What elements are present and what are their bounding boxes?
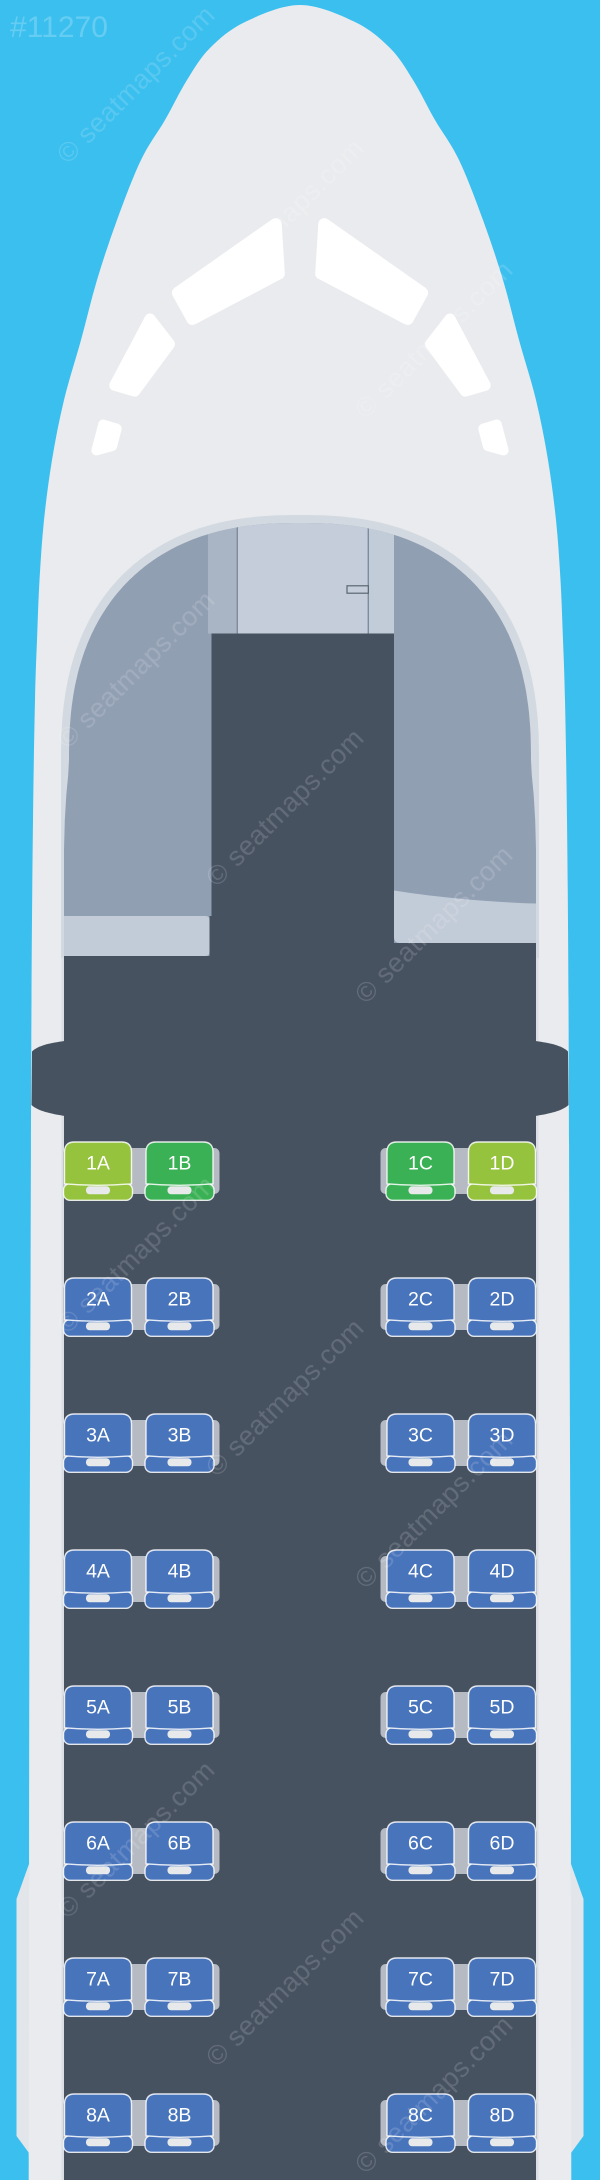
svg-text:8D: 8D (490, 2105, 515, 2127)
svg-text:3A: 3A (86, 1425, 110, 1447)
svg-text:7C: 7C (408, 1969, 433, 1991)
svg-text:7B: 7B (168, 1969, 192, 1991)
svg-text:3C: 3C (408, 1425, 433, 1447)
svg-text:1C: 1C (408, 1153, 433, 1175)
svg-text:2D: 2D (490, 1289, 515, 1311)
svg-text:8A: 8A (86, 2105, 110, 2127)
svg-text:#11270: #11270 (10, 11, 108, 44)
svg-text:4A: 4A (86, 1561, 110, 1583)
svg-text:1D: 1D (490, 1153, 515, 1175)
svg-text:1A: 1A (86, 1153, 110, 1175)
svg-text:6B: 6B (168, 1833, 192, 1855)
svg-text:7D: 7D (490, 1969, 515, 1991)
svg-text:4D: 4D (490, 1561, 515, 1583)
svg-text:8B: 8B (168, 2105, 192, 2127)
svg-text:5D: 5D (490, 1697, 515, 1719)
svg-text:2B: 2B (168, 1289, 192, 1311)
svg-text:5C: 5C (408, 1697, 433, 1719)
svg-text:5B: 5B (168, 1697, 192, 1719)
svg-text:2C: 2C (408, 1289, 433, 1311)
svg-text:1B: 1B (168, 1153, 192, 1175)
svg-text:4C: 4C (408, 1561, 433, 1583)
svg-text:5A: 5A (86, 1697, 110, 1719)
svg-text:6D: 6D (490, 1833, 515, 1855)
svg-text:7A: 7A (86, 1969, 110, 1991)
svg-text:6C: 6C (408, 1833, 433, 1855)
svg-text:4B: 4B (168, 1561, 192, 1583)
svg-text:3B: 3B (168, 1425, 192, 1447)
